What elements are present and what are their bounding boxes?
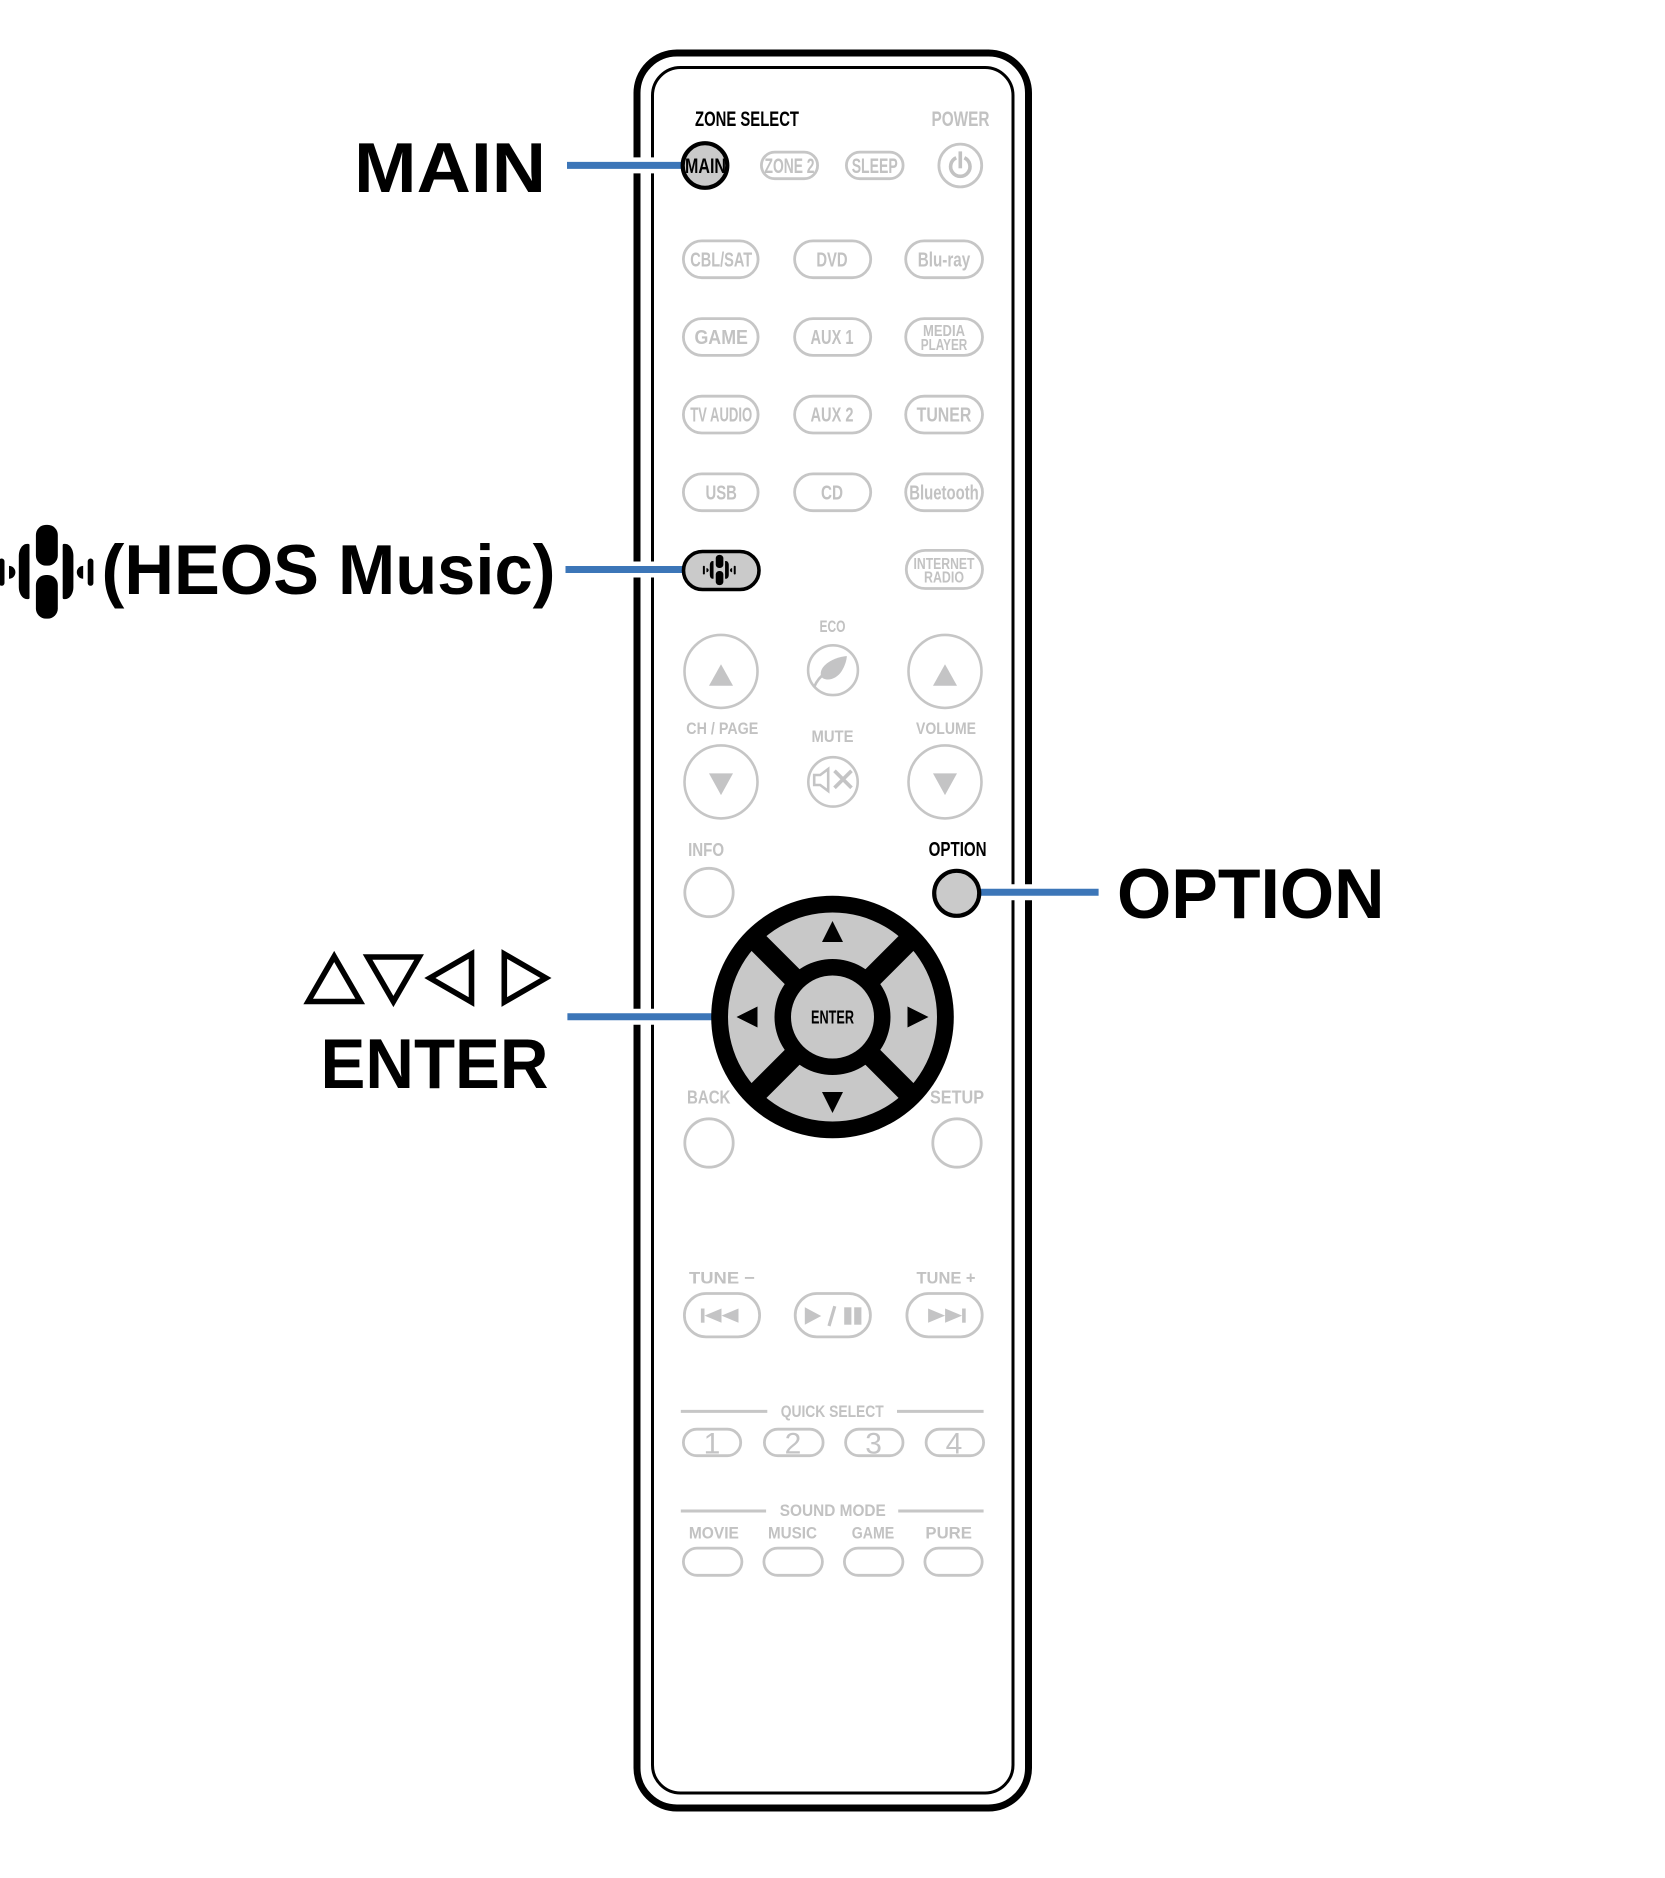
svg-text:TV AUDIO: TV AUDIO — [690, 405, 752, 427]
svg-text:RADIO: RADIO — [924, 570, 964, 587]
svg-text:AUX 2: AUX 2 — [811, 405, 854, 427]
svg-text:ECO: ECO — [820, 617, 846, 636]
svg-text:ENTER: ENTER — [811, 1008, 854, 1028]
svg-text:OPTION: OPTION — [929, 839, 987, 861]
svg-text:3: 3 — [865, 1428, 882, 1461]
svg-text:ZONE SELECT: ZONE SELECT — [695, 107, 799, 131]
svg-text:QUICK SELECT: QUICK SELECT — [781, 1403, 884, 1421]
svg-text:CD: CD — [821, 483, 843, 505]
svg-text:1: 1 — [704, 1428, 721, 1461]
svg-text:AUX 1: AUX 1 — [811, 327, 854, 349]
svg-text:GAME: GAME — [694, 327, 748, 349]
svg-text:TUNER: TUNER — [917, 405, 972, 427]
svg-text:VOLUME: VOLUME — [916, 719, 976, 738]
svg-text:INFO: INFO — [688, 840, 724, 860]
svg-text:MAIN: MAIN — [685, 155, 726, 178]
svg-text:CBL/SAT: CBL/SAT — [690, 250, 752, 272]
svg-text:SOUND MODE: SOUND MODE — [780, 1502, 886, 1520]
svg-text:BACK: BACK — [687, 1088, 731, 1108]
svg-text:TUNE +: TUNE + — [917, 1269, 976, 1288]
svg-text:POWER: POWER — [932, 107, 990, 131]
svg-text:OPTION: OPTION — [1117, 854, 1385, 933]
svg-text:GAME: GAME — [852, 1524, 895, 1542]
svg-text:PURE: PURE — [925, 1524, 972, 1542]
svg-text:Blu-ray: Blu-ray — [918, 250, 971, 272]
svg-text:MUSIC: MUSIC — [768, 1524, 817, 1542]
svg-text:ENTER: ENTER — [321, 1024, 549, 1103]
svg-text:SETUP: SETUP — [930, 1088, 984, 1108]
svg-text:DVD: DVD — [816, 250, 847, 272]
svg-text:TUNE −: TUNE − — [689, 1269, 755, 1288]
svg-text:ZONE 2: ZONE 2 — [765, 155, 815, 178]
svg-text:CH / PAGE: CH / PAGE — [686, 719, 758, 738]
svg-text:USB: USB — [706, 483, 737, 505]
svg-text:MAIN: MAIN — [354, 128, 546, 207]
svg-text:Bluetooth: Bluetooth — [909, 483, 979, 505]
svg-text:MUTE: MUTE — [812, 727, 854, 746]
svg-text:PLAYER: PLAYER — [921, 337, 968, 354]
svg-text:SLEEP: SLEEP — [852, 155, 898, 178]
svg-text:4: 4 — [946, 1428, 963, 1461]
svg-text:2: 2 — [785, 1428, 802, 1461]
svg-text:MOVIE: MOVIE — [689, 1524, 739, 1542]
svg-text:(HEOS Music): (HEOS Music) — [102, 530, 556, 609]
